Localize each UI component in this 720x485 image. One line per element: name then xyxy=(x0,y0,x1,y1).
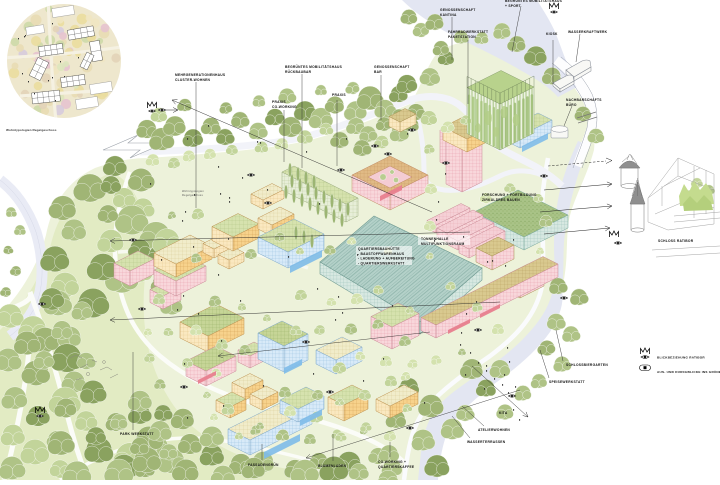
svg-text:PRAXIS: PRAXIS xyxy=(332,93,346,97)
svg-text:Regelgeschoss: Regelgeschoss xyxy=(182,193,203,197)
svg-text:WASSERTERRASSEN: WASSERTERRASSEN xyxy=(467,440,506,444)
svg-text:- QUARTIERSWERKSTATT: - QUARTIERSWERKSTATT xyxy=(358,261,405,265)
svg-text:RÜCKBAUBAR: RÜCKBAUBAR xyxy=(285,70,312,74)
svg-text:KIOSK: KIOSK xyxy=(546,32,558,36)
svg-text:SCHLOSS RATIBOR: SCHLOSS RATIBOR xyxy=(658,239,694,243)
svg-text:WASSERKRAFTWERK: WASSERKRAFTWERK xyxy=(568,30,608,34)
svg-text:KANTINA: KANTINA xyxy=(440,13,457,17)
svg-text:GENOSSENSCHAFT: GENOSSENSCHAFT xyxy=(374,65,410,69)
svg-text:SCHLOSSBIERGARTEN: SCHLOSSBIERGARTEN xyxy=(566,363,608,367)
svg-text:QUARTIERSBAUHÜTTE: QUARTIERSBAUHÜTTE xyxy=(358,247,400,251)
svg-text:FAHRRADWERKSTATT: FAHRRADWERKSTATT xyxy=(448,30,488,34)
svg-text:FASSADENGRÜN: FASSADENGRÜN xyxy=(248,463,279,467)
svg-text:- BAUSTOFFWARENHAUS: - BAUSTOFFWARENHAUS xyxy=(358,252,405,256)
svg-text:BEGRÜNTES MOBILITÄTSHAUS: BEGRÜNTES MOBILITÄTSHAUS xyxy=(285,65,343,69)
svg-text:BAR: BAR xyxy=(374,70,382,74)
svg-text:FORSCHUNG + FORTBILDUNG: FORSCHUNG + FORTBILDUNG xyxy=(482,193,537,197)
svg-text:SPEISEWERKSTATT: SPEISEWERKSTATT xyxy=(549,380,585,384)
svg-text:CO-WORKING +: CO-WORKING + xyxy=(378,460,406,464)
svg-text:QUARTIERSKAFFEE: QUARTIERSKAFFEE xyxy=(378,465,415,469)
svg-text:BEGRÜNTES MOBILITÄTSHAUS: BEGRÜNTES MOBILITÄTSHAUS xyxy=(505,0,563,3)
svg-text:AUS- UND DURCHBLICKE INS GRÜNE: AUS- UND DURCHBLICKE INS GRÜNE xyxy=(657,370,720,374)
svg-text:KITA: KITA xyxy=(499,411,508,415)
svg-text:NACHBARSCHAFTS: NACHBARSCHAFTS xyxy=(566,98,602,102)
svg-text:Wohntypologien: Wohntypologien xyxy=(182,189,204,193)
svg-text:PAKETSTATION: PAKETSTATION xyxy=(448,35,476,39)
svg-text:BLUMENLADEN: BLUMENLADEN xyxy=(318,464,347,468)
svg-text:GENOSSENSCHAFT: GENOSSENSCHAFT xyxy=(440,8,476,12)
svg-text:BÜRO: BÜRO xyxy=(566,103,577,107)
svg-text:CLUSTER-WOHNEN: CLUSTER-WOHNEN xyxy=(175,78,211,82)
svg-text:BLICKBEZIEHUNG RATIBOR: BLICKBEZIEHUNG RATIBOR xyxy=(657,356,705,360)
svg-text:Wohntypologien Regelgeschoss: Wohntypologien Regelgeschoss xyxy=(6,128,57,132)
svg-text:ZIRKULÄRES BAUEN: ZIRKULÄRES BAUEN xyxy=(482,198,520,202)
svg-text:MULTIFUNKTIONSRAUM: MULTIFUNKTIONSRAUM xyxy=(421,242,464,246)
svg-text:PARK WERKSTATT: PARK WERKSTATT xyxy=(120,432,154,436)
svg-text:PRAXIS: PRAXIS xyxy=(272,100,286,104)
svg-text:ATELIERWOHNEN: ATELIERWOHNEN xyxy=(478,428,510,432)
svg-text:- LADERUNG + AUFBEREITUNG: - LADERUNG + AUFBEREITUNG xyxy=(358,257,415,261)
svg-text:+ SPORT: + SPORT xyxy=(505,4,521,8)
svg-text:CO-WORKING: CO-WORKING xyxy=(272,105,297,109)
svg-text:MEHRGENERATIONENHAUS: MEHRGENERATIONENHAUS xyxy=(175,73,226,77)
